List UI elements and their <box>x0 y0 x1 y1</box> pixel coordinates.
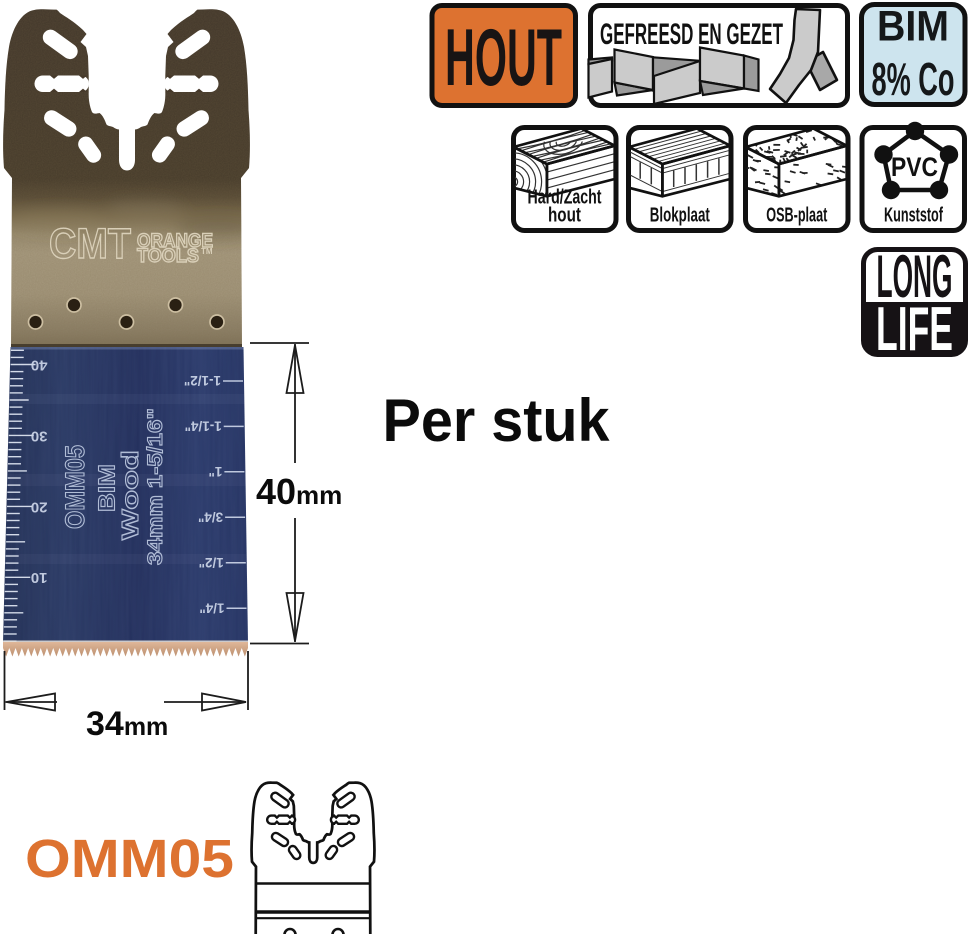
svg-text:20: 20 <box>31 499 48 516</box>
svg-text:8% Co: 8% Co <box>872 53 955 105</box>
svg-text:34mm: 34mm <box>86 705 168 743</box>
svg-text:HOUT: HOUT <box>445 13 562 103</box>
svg-text:3/4": 3/4" <box>198 510 223 525</box>
svg-text:30: 30 <box>31 428 48 445</box>
svg-text:1-1/4": 1-1/4" <box>185 419 222 434</box>
svg-text:Wood: Wood <box>117 450 143 540</box>
svg-text:LIFE: LIFE <box>876 295 953 364</box>
svg-text:1/2": 1/2" <box>199 555 224 570</box>
svg-text:Per stuk: Per stuk <box>383 387 611 454</box>
svg-text:1/4": 1/4" <box>199 600 224 615</box>
svg-text:OMM05: OMM05 <box>25 829 234 889</box>
svg-text:OSB-plaat: OSB-plaat <box>766 205 827 227</box>
svg-text:BIM: BIM <box>94 464 120 512</box>
svg-text:40mm: 40mm <box>256 471 342 512</box>
svg-text:TOOLS: TOOLS <box>137 246 199 267</box>
svg-text:1": 1" <box>208 464 222 479</box>
svg-text:CMT: CMT <box>49 220 131 268</box>
svg-text:GEFREESD EN GEZET: GEFREESD EN GEZET <box>600 18 783 51</box>
svg-text:hout: hout <box>548 205 581 227</box>
svg-text:PVC: PVC <box>891 152 938 182</box>
svg-text:OMM05: OMM05 <box>60 445 90 529</box>
svg-text:TM: TM <box>201 247 213 256</box>
svg-text:Blokplaat: Blokplaat <box>650 205 710 227</box>
svg-text:BIM: BIM <box>877 3 949 51</box>
svg-text:1-1/2": 1-1/2" <box>184 373 221 388</box>
svg-text:Kunststof: Kunststof <box>884 205 943 227</box>
svg-text:34mm 1-5/16": 34mm 1-5/16" <box>144 408 167 565</box>
svg-text:40: 40 <box>31 357 48 374</box>
svg-text:10: 10 <box>31 569 48 586</box>
